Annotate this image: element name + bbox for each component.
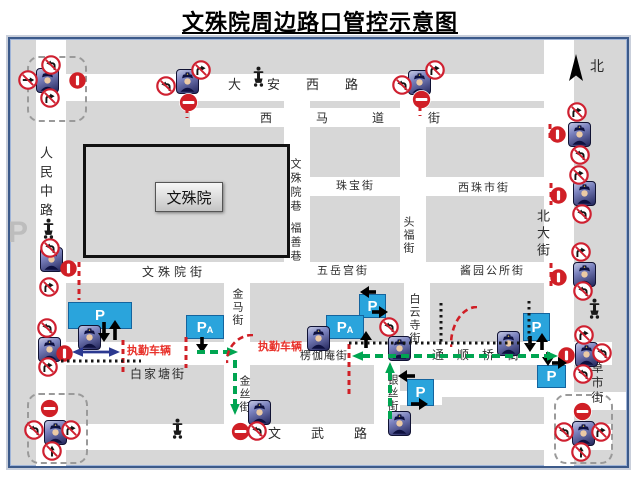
no-left-turn-sign [572, 204, 592, 224]
no-right-turn-sign [574, 325, 594, 345]
route-arrow-green [228, 359, 242, 415]
no-right-turn-sign [38, 357, 58, 377]
police-icon [307, 326, 330, 351]
street-label: 金马街 [231, 288, 242, 327]
checkpoint-sign [69, 72, 86, 89]
traffic-control-map: 文殊院周边路口管控示意图 人民中路大安西路西马道街文殊院巷福善巷珠宝街西珠市街头… [0, 0, 640, 479]
direction-arrow [398, 370, 415, 382]
route-arrow-green [383, 362, 397, 424]
street-label: 西珠市街 [458, 183, 510, 194]
escort-double-arrow [72, 345, 120, 359]
duty-vehicle-label: 执勤车辆 [258, 342, 302, 353]
no-right-turn-sign [40, 88, 60, 108]
closure-dash-line [543, 123, 557, 143]
no-left-turn-sign [573, 364, 593, 384]
no-right-turn-sign [571, 242, 591, 262]
guide-dot-line [522, 300, 536, 346]
direction-arrow [109, 320, 121, 340]
building-label: 文殊院 [155, 182, 223, 212]
closure-dash-line [72, 261, 86, 301]
street-label: 五岳宫街 [317, 266, 369, 277]
closure-arc-line [450, 306, 480, 348]
closure-dash-line [180, 107, 194, 119]
no-right-turn-sign [61, 420, 81, 440]
direction-arrow [360, 286, 376, 298]
motorcycle-icon [251, 66, 266, 87]
motorcycle-icon [41, 218, 56, 239]
parking-watermark: P [8, 218, 28, 248]
closure-dash-line [413, 105, 427, 117]
street-label: 珠宝街 [336, 181, 375, 192]
police-icon [568, 122, 591, 147]
closure-dash-line [544, 182, 558, 206]
street-label: 酱园公所街 [460, 266, 525, 277]
street-label: 头福街 [402, 216, 413, 255]
no-right-turn-sign [39, 277, 59, 297]
street-label: 文武路 [268, 427, 397, 440]
no-left-turn-sign [592, 343, 612, 363]
no-straight-sign [571, 442, 591, 462]
closure-dash-line [179, 336, 193, 369]
no-right-turn-sign [191, 60, 211, 80]
street-label: 人民中路 [39, 146, 52, 222]
street-label: 楞伽庵街 [300, 351, 348, 362]
route-arrow-green [352, 349, 558, 363]
no-right-turn-sign [567, 102, 587, 122]
map-title: 文殊院周边路口管控示意图 [0, 5, 640, 37]
no-right-turn-sign [569, 165, 589, 185]
motorcycle-icon [170, 418, 185, 439]
street-label: 文殊院街 [142, 266, 206, 278]
no-right-turn-sign [591, 422, 611, 442]
no-right-turn-sign [425, 60, 445, 80]
street-label: 西马道街 [260, 112, 484, 124]
street-label: 白家塘街 [130, 368, 186, 380]
no-left-turn-sign [392, 75, 412, 95]
no-left-turn-sign [570, 145, 590, 165]
street-side-lane [430, 380, 544, 397]
direction-arrow [411, 398, 428, 410]
closure-arc-line [226, 334, 256, 364]
no-left-turn-sign [24, 420, 44, 440]
no-left-turn-sign [379, 317, 399, 337]
no-straight-sign [42, 441, 62, 461]
no-left-turn-sign [247, 421, 267, 441]
north-label: 北 [590, 61, 604, 75]
no-through-sign [18, 70, 38, 90]
motorcycle-icon [587, 298, 602, 319]
no-left-turn-sign [554, 422, 574, 442]
no-left-turn-sign [40, 238, 60, 258]
no-left-turn-sign [41, 55, 61, 75]
direction-arrow [536, 333, 548, 350]
no-left-turn-sign [156, 76, 176, 96]
guide-dot-line [434, 302, 448, 344]
no-entry-sign [573, 402, 592, 421]
no-left-turn-sign [37, 318, 57, 338]
no-entry-sign [40, 399, 59, 418]
street-label: 文殊院巷 [289, 158, 300, 214]
north-arrow-icon [567, 54, 585, 86]
street-label: 北大街 [536, 209, 549, 260]
direction-arrow [372, 306, 388, 318]
closure-dash-line [544, 262, 558, 289]
street-label: 福善巷 [289, 222, 300, 264]
